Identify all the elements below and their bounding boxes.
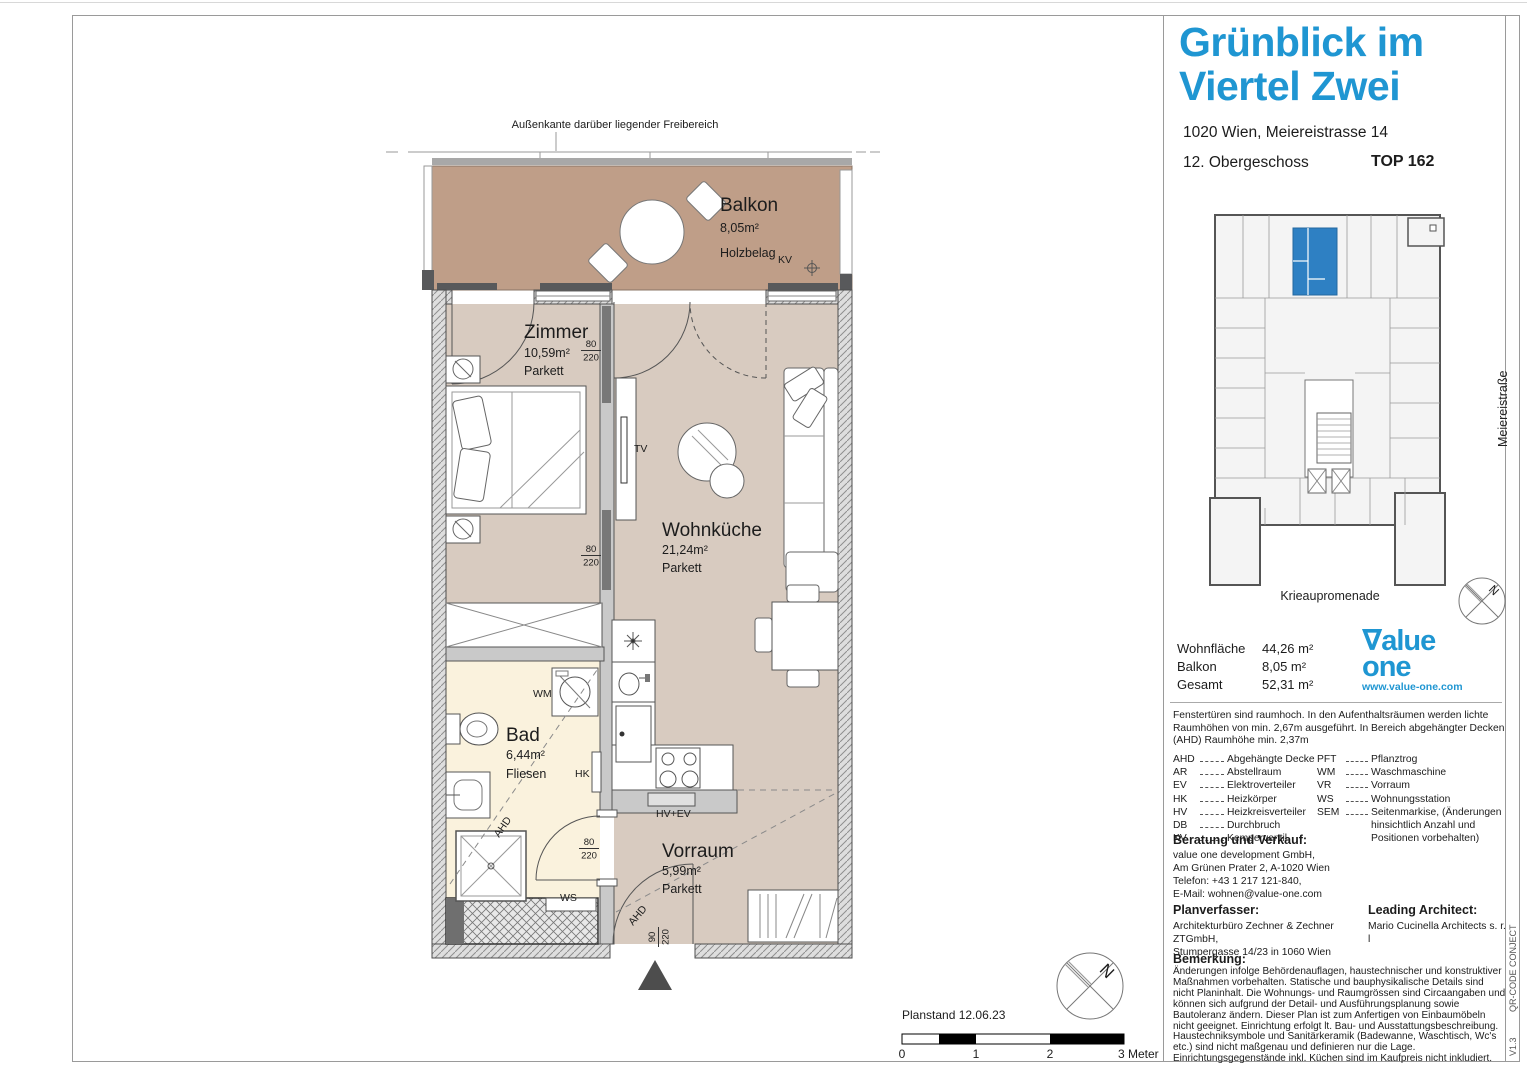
room-area: 5,99m² [662,864,701,878]
contact-block: value one development GmbH, Am Grünen Pr… [1173,849,1330,901]
svg-text:1: 1 [973,1047,980,1060]
legend-row: SEMSeitenmarkise, (Änderungen hinsichtli… [1317,806,1505,846]
legend-row: VRVorraum [1317,779,1505,792]
page-top-edge [0,2,1527,3]
ws-label: WS [560,892,577,904]
svg-text:80: 80 [586,339,597,350]
logo-url: www.value-one.com [1362,680,1463,694]
washbasin-icon [446,772,490,818]
sidebar-divider [1163,15,1164,1062]
key-plan [1205,213,1455,587]
svg-text:90: 90 [647,932,658,943]
svg-text:0: 0 [899,1047,906,1060]
unit-label: TOP 162 [1371,153,1434,171]
compass-icon: N [1454,573,1510,629]
project-title-line1: Grünblick im [1179,20,1424,64]
bed-icon [446,386,586,514]
plan-date: Planstand 12.06.23 [902,1008,1006,1022]
room-name: Bad [506,725,540,746]
project-address: 1020 Wien, Meiereistrasse 14 [1183,124,1388,142]
room-area: 6,44m² [506,748,545,762]
room-name: Vorraum [662,841,734,862]
scale-bar: 0 1 2 3 Meter [899,1034,1159,1060]
value-one-logo: ∇alue one www.value-one.com [1362,628,1463,694]
area-value: 44,26 m² [1262,640,1313,658]
legend-row: WSWohnungsstation [1317,793,1505,806]
planner-heading: Planverfasser: [1173,903,1259,917]
legend-right: PFTPflanztrog WMWaschmaschine VRVorraum … [1317,753,1505,845]
fridge-icon [616,706,651,762]
remark-text: Änderungen infolge Behördenauflagen, hau… [1173,967,1507,1065]
shower-icon [456,831,526,901]
tv-label: TV [634,443,647,455]
room-area: 10,59m² [524,346,570,360]
ceiling-note: Fenstertüren sind raumhoch. In den Aufen… [1173,710,1508,748]
sofa-icon [783,366,838,592]
contact-heading: Beratung und Verkauf: [1173,833,1307,847]
outer-edge-label: Außenkante darüber liegender Freibereich [512,119,719,131]
hk-label: HK [575,768,590,780]
nightstand-icon [446,356,480,383]
area-value: 8,05 m² [1262,658,1306,676]
svg-text:220: 220 [583,353,599,364]
svg-text:3 Meter: 3 Meter [1118,1047,1159,1060]
room-name: Balkon [720,195,778,216]
sidebar-right-divider [1505,15,1506,1062]
room-floor: Parkett [662,561,702,575]
area-label: Balkon [1177,658,1217,676]
area-label: Wohnfläche [1177,640,1245,658]
floor-label: 12. Obergeschoss [1183,154,1309,172]
sliding-door-leaf [602,510,611,590]
divider [1170,702,1502,703]
awning-band [432,158,852,165]
room-floor: Parkett [524,364,564,378]
room-area: 21,24m² [662,543,708,557]
highlighted-unit [1293,228,1337,295]
tv-board-icon [616,378,636,520]
sliding-door-leaf [602,306,611,403]
hv-ev-label: HV+EV [656,808,691,820]
hall-wardrobe-icon [748,890,838,942]
area-value: 52,31 m² [1262,676,1313,694]
edge-label-qr: QR-CODE CONJECT [1508,925,1518,1013]
edge-label-version: V1.3 [1508,1037,1518,1056]
room-name: Wohnküche [662,520,762,541]
svg-text:220: 220 [581,851,597,862]
project-title-line2: Viertel Zwei [1179,64,1424,108]
outer-edge-line: Außenkante darüber liegender Freibereich [386,119,880,165]
svg-text:220: 220 [661,929,672,945]
architect-block: Mario Cucinella Architects s. r. l [1368,920,1508,946]
room-floor: Parkett [662,882,702,896]
legend-row: PFTPflanztrog [1317,753,1505,766]
wc-icon [446,713,498,745]
wardrobe-icon [446,603,602,647]
washing-machine-icon [552,668,598,716]
legend-row: WMWaschmaschine [1317,766,1505,779]
street-label-right: Meiereistraße [1496,371,1510,447]
street-label-bottom: Krieaupromenade [1205,589,1455,603]
svg-text:80: 80 [584,837,595,848]
kv-label: KV [778,254,792,266]
svg-text:220: 220 [583,558,599,569]
svg-text:80: 80 [586,544,597,555]
building-core [1305,380,1353,493]
project-title: Grünblick im Viertel Zwei [1179,20,1424,108]
compass-icon: N [1057,953,1123,1019]
hv-ev-niche [648,793,695,806]
floor-plan: Außenkante darüber liegender Freibereich [72,15,1163,1060]
nightstand-icon [446,516,480,543]
stove-icon [656,748,700,788]
area-label: Gesamt [1177,676,1223,694]
radiator-icon [592,752,601,792]
room-floor: Holzbelag [720,246,776,260]
svg-text:2: 2 [1047,1047,1054,1060]
architect-heading: Leading Architect: [1368,903,1477,917]
room-area: 8,05m² [720,221,759,235]
room-floor: Fliesen [506,767,546,781]
room-name: Zimmer [524,322,589,343]
wm-label: WM [533,688,552,700]
entrance-arrow-icon [638,960,672,990]
remark-heading: Bemerkung: [1173,952,1246,966]
